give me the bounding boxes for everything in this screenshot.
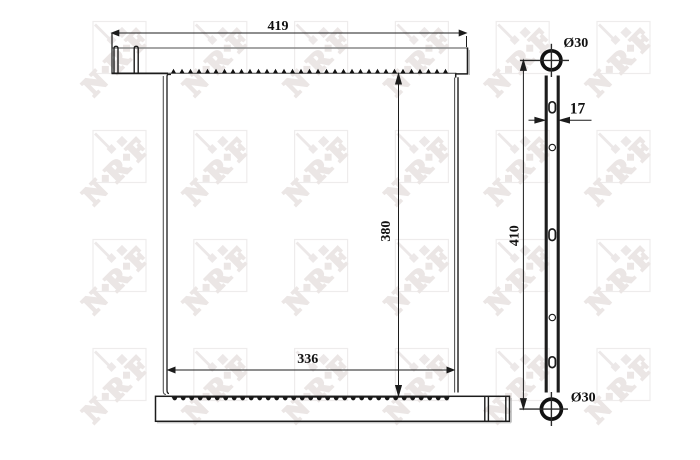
svg-text:17: 17 [570,101,586,118]
svg-text:410: 410 [507,225,522,246]
svg-text:Ø30: Ø30 [571,391,596,406]
svg-text:336: 336 [297,352,318,367]
svg-text:Ø30: Ø30 [563,36,588,51]
svg-text:380: 380 [379,221,394,242]
svg-text:419: 419 [268,19,289,34]
